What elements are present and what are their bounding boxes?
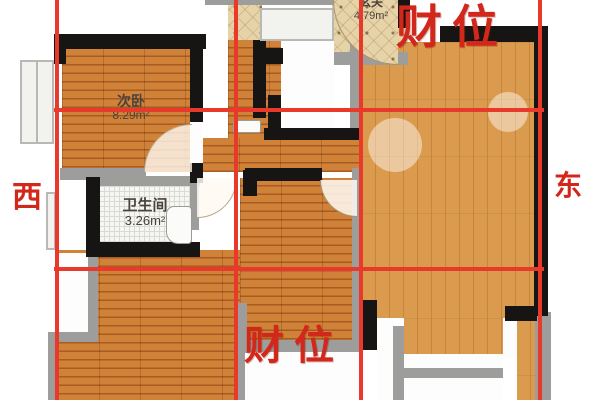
grid-line-vertical-1 xyxy=(55,0,59,400)
wall-balcony-rail xyxy=(404,368,503,378)
wall-bottom-post xyxy=(362,300,377,350)
floor-plan: 次卧 8.29m² 卫生间 3.26m² 玄关 4.79m² 财位 财位 西 东 xyxy=(0,0,600,400)
grid-line-vertical-2 xyxy=(234,0,238,400)
wall-pocket-right xyxy=(88,253,98,338)
wall-hall-corner xyxy=(264,48,283,64)
balcony-window-band xyxy=(404,354,503,368)
entry-label: 玄关 4.79m² xyxy=(344,0,398,22)
compass-east-label: 东 xyxy=(554,172,582,200)
wall-hall-bottom xyxy=(264,128,360,140)
wall-bathroom-top xyxy=(86,176,200,186)
bathroom-name: 卫生间 xyxy=(99,197,191,214)
grid-line-vertical-3 xyxy=(359,0,363,400)
bathroom-area: 3.26m² xyxy=(99,214,191,229)
grid-line-vertical-4 xyxy=(538,0,542,400)
main-room-floor xyxy=(362,42,540,318)
balcony-side-window xyxy=(503,318,517,358)
wealth-position-label-bottom: 财位 xyxy=(244,326,344,366)
balcony-floor xyxy=(404,318,503,356)
entry-area: 4.79m² xyxy=(344,10,398,23)
bathroom-label: 卫生间 3.26m² xyxy=(99,197,191,229)
wall-bathroom-bottom xyxy=(86,242,200,257)
duct-pocket xyxy=(59,253,89,337)
wall-center-room-top xyxy=(245,168,322,181)
entry-name: 玄关 xyxy=(344,0,398,10)
landing-floor xyxy=(198,138,362,172)
wealth-position-label-top: 财位 xyxy=(396,4,508,50)
wall-bedroom-top xyxy=(54,34,206,49)
wall-balcony-corner xyxy=(505,306,537,321)
compass-west-label: 西 xyxy=(12,183,42,213)
wall-top-edge xyxy=(205,0,336,5)
balcony-outside xyxy=(404,378,503,400)
grid-line-horizontal-1 xyxy=(54,108,544,112)
balcony-notch xyxy=(377,320,394,400)
light-circle-right xyxy=(488,92,528,132)
balcony-side-floor xyxy=(517,318,535,400)
bay-window xyxy=(20,60,54,144)
closet-cabinet xyxy=(260,8,334,41)
bathroom-door-arc xyxy=(197,178,237,218)
grid-line-horizontal-2 xyxy=(54,267,544,271)
light-circle-main-room xyxy=(368,118,422,172)
wall-balcony-divider xyxy=(393,326,404,400)
secondary-bedroom-name: 次卧 xyxy=(94,93,168,109)
